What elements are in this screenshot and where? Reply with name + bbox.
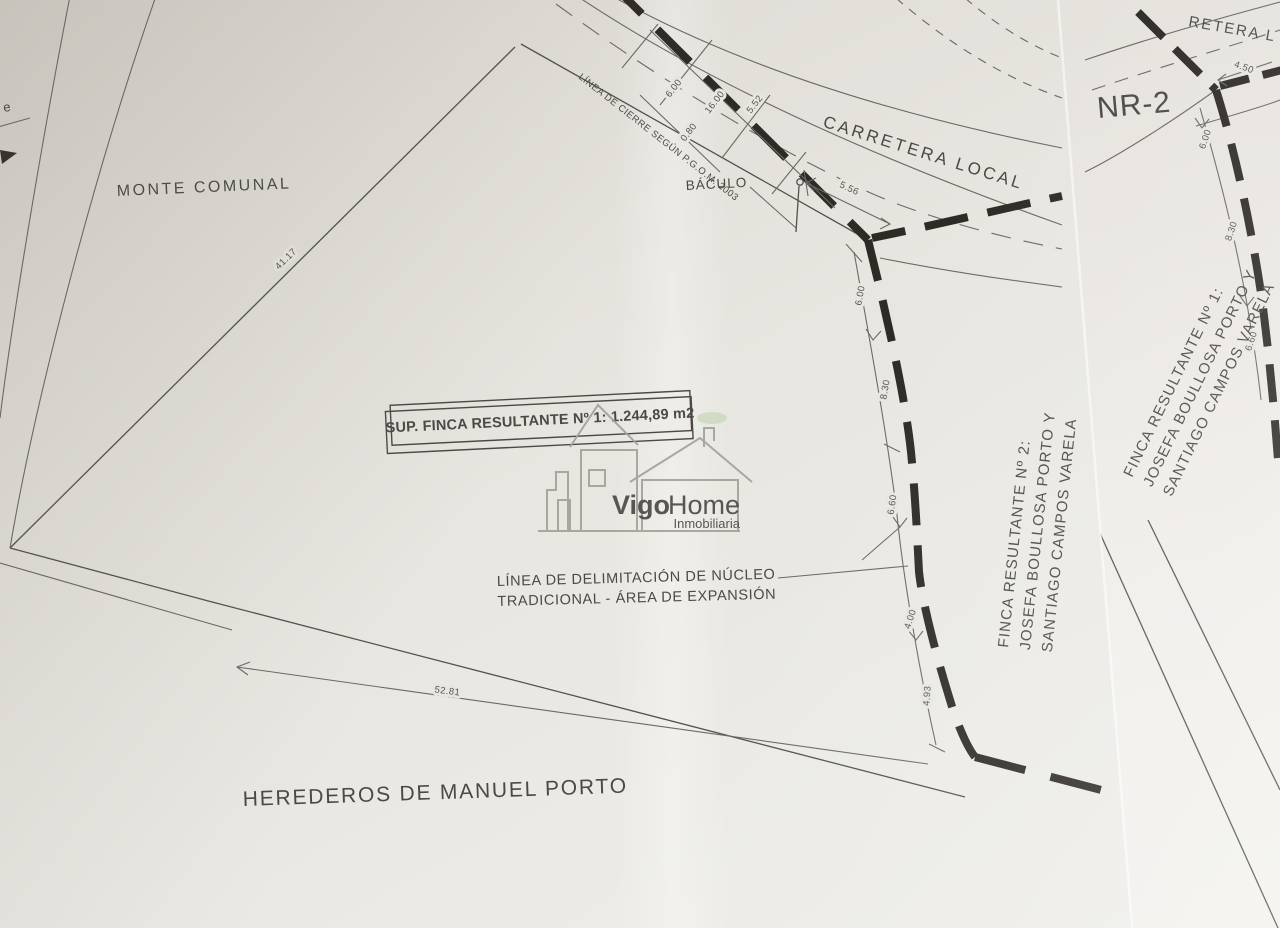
carretera-local-partial-label: RETERA L <box>1187 13 1277 45</box>
dim-bottom: 52.81 <box>434 684 461 698</box>
herederos-label: HEREDEROS DE MANUEL PORTO <box>242 775 628 811</box>
baculo-pole-icon <box>797 179 803 185</box>
edge-partial-text: e <box>2 99 12 115</box>
east-dimension-chain: 6.00 8.30 6.60 4.00 4.93 <box>846 244 945 752</box>
dim-road-width: 5.56 <box>838 180 861 198</box>
delimitacion-note: LÍNEA DE DELIMITACIÓN DE NÚCLEO TRADICIO… <box>497 566 777 610</box>
west-track-lines <box>0 0 156 548</box>
baculo-label: BÁCULO <box>685 175 747 193</box>
road-width-dimension: 5.56 <box>804 170 890 229</box>
delimitacion-leader <box>778 566 908 578</box>
sup-finca-box: SUP. FINCA RESULTANTE Nº 1: 1.244,89 m2 <box>385 390 696 453</box>
edge-arrow-icon <box>0 150 17 164</box>
carretera-local-label: CARRETERA LOCAL <box>821 112 1026 193</box>
finca1-line2: JOSEFA BOULLOSA PORTO Y <box>1140 267 1260 490</box>
owner-block-finca2: FINCA RESULTANTE Nº 2: JOSEFA BOULLOSA P… <box>995 409 1081 653</box>
dim-upper-left: 41.17 <box>273 246 299 272</box>
dim-east-5: 4.93 <box>921 685 933 706</box>
delimitacion-line2: TRADICIONAL - ÁREA DE EXPANSIÓN <box>497 586 776 610</box>
dim-nr2-3: 8.30 <box>1223 220 1240 243</box>
sup-finca-label: SUP. FINCA RESULTANTE Nº 1: 1.244,89 m2 <box>385 405 695 436</box>
nr2-sheet-label: NR-2 <box>1096 86 1173 125</box>
plan-linework: e <box>0 0 1280 928</box>
bottom-dimension: 52.81 <box>0 563 928 764</box>
dim-east-1: 6.00 <box>853 285 867 307</box>
dim-east-2: 8.30 <box>878 379 892 401</box>
watermark-tagline: Inmobiliaria <box>674 516 741 531</box>
dim-east-3: 6.60 <box>886 494 900 515</box>
right-sheet-drawing: 4.50 6.00 8.30 6.60 RETERA L NR-2 FINCA … <box>1085 2 1280 928</box>
nucleo-delimitation-dashed-line <box>622 0 1124 796</box>
delimitacion-line1: LÍNEA DE DELIMITACIÓN DE NÚCLEO <box>497 566 776 590</box>
baculo-callout: BÁCULO <box>685 175 803 232</box>
road-edge-lines <box>556 0 1062 287</box>
watermark-leaf-smudge <box>697 412 727 424</box>
dim-road-1: 6.00 <box>664 77 685 100</box>
dim-road-4: 0.80 <box>679 121 700 144</box>
dim-road-2: 16.00 <box>703 89 728 116</box>
monte-comunal-label: MONTE COMUNAL <box>116 175 291 200</box>
plan-photo: e <box>0 0 1280 928</box>
owner-block-finca1: FINCA RESULTANTE Nº 1: JOSEFA BOULLOSA P… <box>1120 257 1280 499</box>
dim-east-4: 4.00 <box>902 608 919 631</box>
edge-partial-label: e <box>0 99 30 164</box>
left-sheet-drawing: e <box>0 0 1124 811</box>
watermark-brand-primary: Vigo <box>612 490 670 520</box>
